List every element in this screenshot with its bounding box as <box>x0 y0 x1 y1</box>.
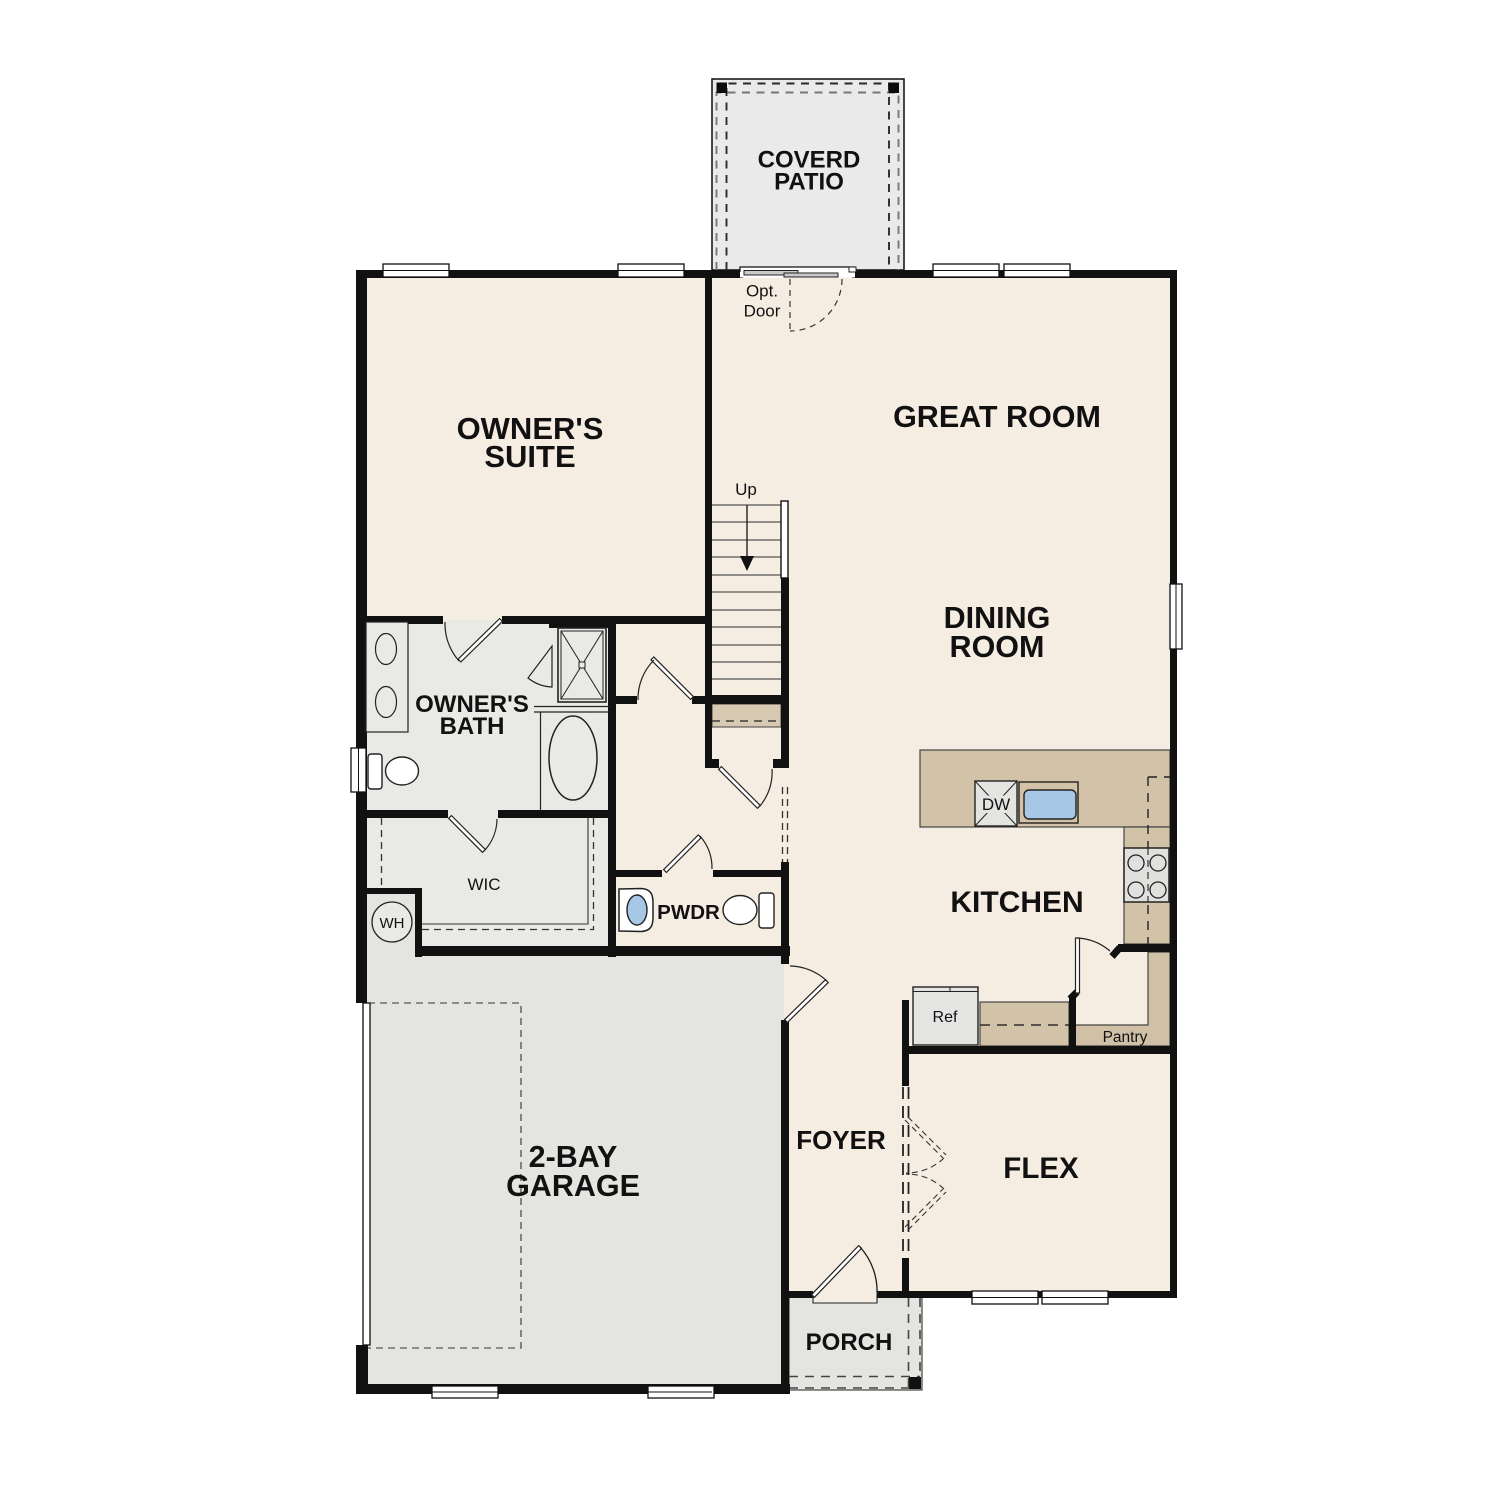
svg-text:Up: Up <box>735 480 757 499</box>
svg-text:Ref: Ref <box>933 1009 958 1026</box>
svg-text:GARAGE: GARAGE <box>506 1169 640 1203</box>
svg-text:BATH: BATH <box>440 713 505 740</box>
svg-text:Pantry: Pantry <box>1103 1029 1148 1046</box>
svg-text:WH: WH <box>380 915 405 932</box>
svg-text:SUITE: SUITE <box>484 439 575 474</box>
svg-text:GREAT ROOM: GREAT ROOM <box>893 400 1101 434</box>
svg-text:PWDR: PWDR <box>657 901 720 924</box>
svg-text:PATIO: PATIO <box>774 169 844 196</box>
svg-text:FOYER: FOYER <box>796 1125 886 1155</box>
svg-text:KITCHEN: KITCHEN <box>950 886 1083 919</box>
svg-text:DW: DW <box>982 795 1010 814</box>
svg-text:Opt.: Opt. <box>746 282 778 301</box>
svg-text:PORCH: PORCH <box>806 1329 893 1356</box>
svg-text:Door: Door <box>744 302 781 321</box>
svg-text:WIC: WIC <box>467 875 500 894</box>
svg-text:FLEX: FLEX <box>1003 1152 1079 1185</box>
svg-text:ROOM: ROOM <box>950 630 1045 664</box>
